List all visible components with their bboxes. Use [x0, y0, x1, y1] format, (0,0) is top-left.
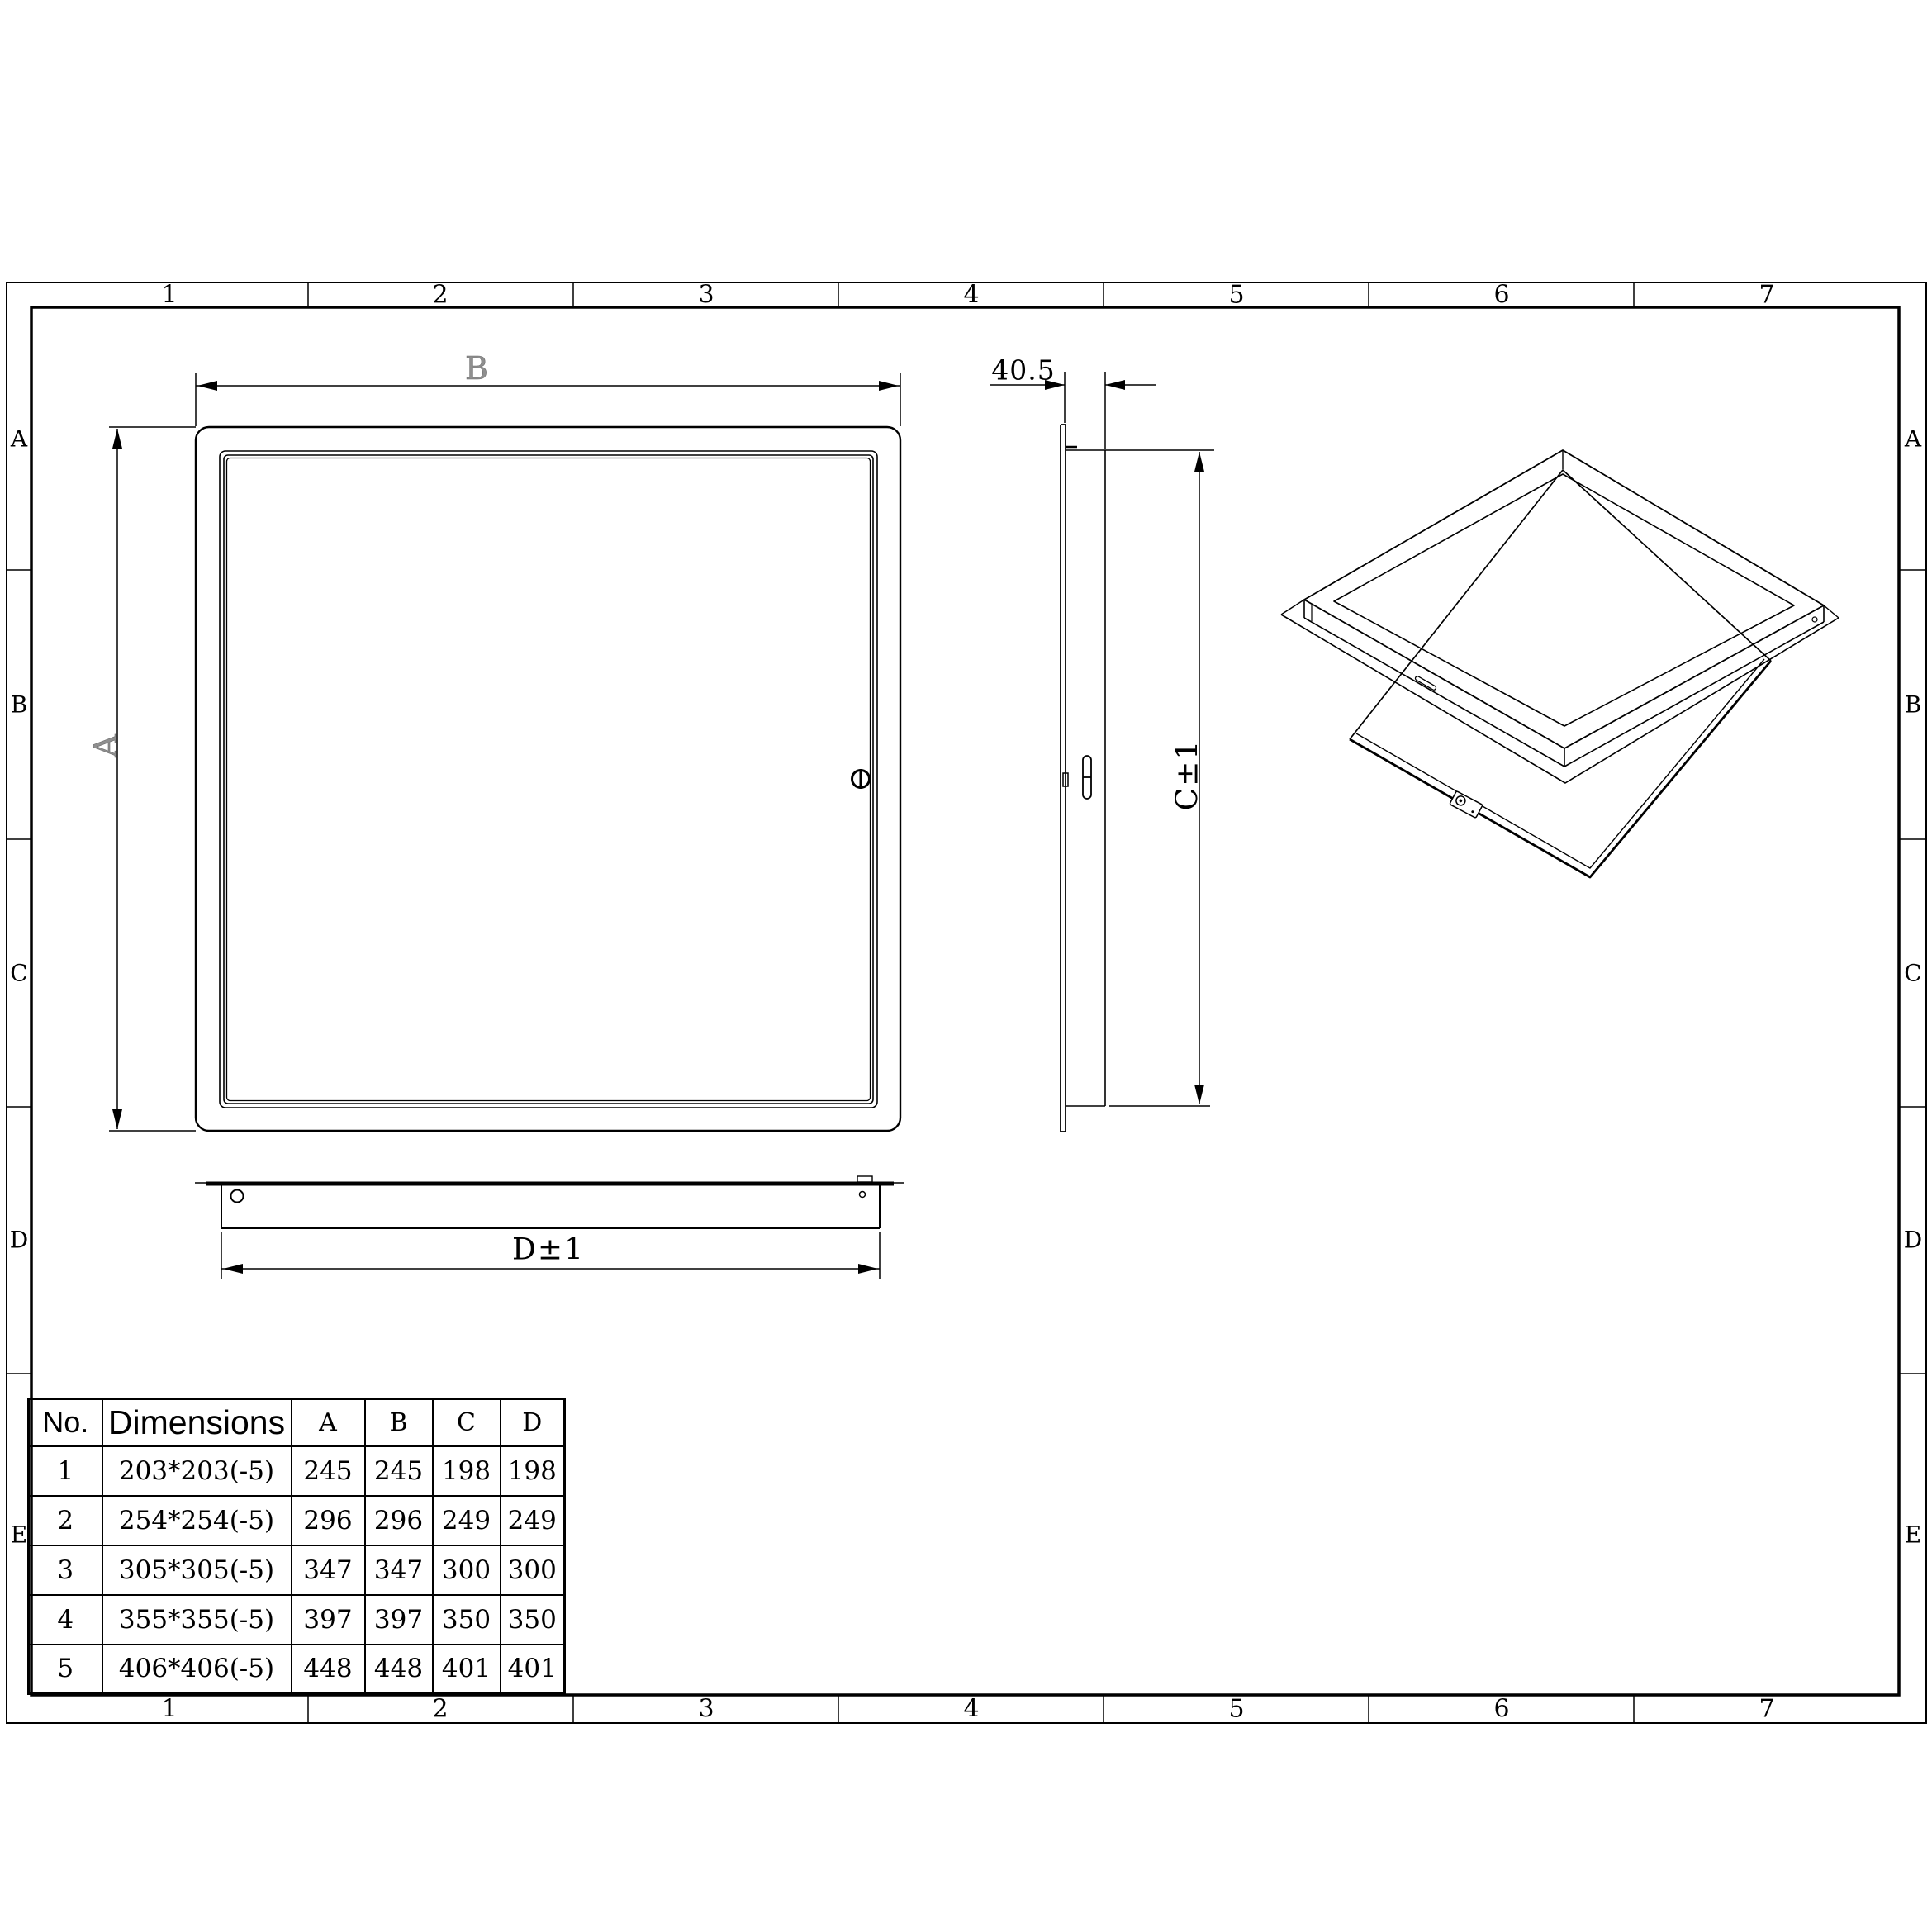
grid-col-top-4: 4	[963, 281, 979, 310]
door-flap	[1350, 470, 1771, 877]
front-height-label: A	[88, 734, 124, 757]
row-c: 249	[433, 1496, 501, 1545]
row-a: 347	[292, 1545, 365, 1595]
handle-icon	[1063, 756, 1091, 799]
row-a: 448	[292, 1645, 365, 1694]
grid-col-top-1: 1	[161, 281, 177, 310]
grid-col-top-2: 2	[432, 281, 448, 310]
row-c: 401	[433, 1645, 501, 1694]
isometric-view	[1281, 450, 1839, 877]
side-height-label: C±1	[1171, 739, 1205, 811]
row-a: 245	[292, 1446, 365, 1496]
row-b: 397	[365, 1595, 433, 1645]
grid-col-bottom-7: 7	[1759, 1695, 1774, 1724]
row-c: 350	[433, 1595, 501, 1645]
row-a: 296	[292, 1496, 365, 1545]
latch-icon	[1450, 791, 1483, 819]
grid-row-right-E: E	[1905, 1521, 1921, 1549]
row-b: 296	[365, 1496, 433, 1545]
table-row: 4 355*355(-5) 397 397 350 350	[29, 1595, 565, 1645]
grid-row-right-D: D	[1904, 1227, 1922, 1254]
header-c: C	[433, 1399, 501, 1446]
grid-col-bottom-2: 2	[432, 1695, 448, 1724]
row-no: 1	[29, 1446, 102, 1496]
row-dim: 406*406(-5)	[102, 1645, 292, 1694]
drawing-sheet: 1 2 3 4 5 6 7 1 2 3 4 5 6 7 A B C D E A …	[0, 0, 1932, 1932]
grid-row-left-E: E	[11, 1521, 27, 1549]
table-row: 5 406*406(-5) 448 448 401 401	[29, 1645, 565, 1694]
grid-row-right-B: B	[1905, 691, 1922, 719]
grid-col-bottom-5: 5	[1228, 1695, 1244, 1724]
grid-row-right-A: A	[1905, 425, 1921, 453]
grid-col-bottom-6: 6	[1493, 1695, 1509, 1724]
header-a: A	[292, 1399, 365, 1446]
row-no: 3	[29, 1545, 102, 1595]
grid-row-left-A: A	[11, 425, 27, 453]
grid-row-left-C: C	[10, 960, 27, 987]
row-no: 5	[29, 1645, 102, 1694]
knob-icon	[852, 769, 870, 789]
mount-hole-left	[231, 1190, 244, 1203]
grid-row-right-C: C	[1904, 960, 1921, 987]
table-header-row: No. Dimensions A B C D	[29, 1399, 565, 1446]
flange-hole	[1812, 617, 1817, 622]
front-width-label: B	[465, 350, 488, 387]
header-d: D	[501, 1399, 565, 1446]
row-dim: 203*203(-5)	[102, 1446, 292, 1496]
table-row: 3 305*305(-5) 347 347 300 300	[29, 1545, 565, 1595]
row-b: 245	[365, 1446, 433, 1496]
row-d: 249	[501, 1496, 565, 1545]
row-c: 300	[433, 1545, 501, 1595]
dimension-table: No. Dimensions A B C D 1 203*203(-5) 245…	[27, 1398, 566, 1695]
row-no: 2	[29, 1496, 102, 1545]
table-row: 1 203*203(-5) 245 245 198 198	[29, 1446, 565, 1496]
grid-col-top-3: 3	[698, 281, 714, 310]
row-dim: 305*305(-5)	[102, 1545, 292, 1595]
dim-A	[109, 427, 196, 1131]
mount-hole-right	[860, 1192, 866, 1198]
row-d: 198	[501, 1446, 565, 1496]
grid-col-top-6: 6	[1493, 281, 1509, 310]
grid-row-left-B: B	[11, 691, 28, 719]
grid-row-left-D: D	[10, 1227, 28, 1254]
table-row: 2 254*254(-5) 296 296 249 249	[29, 1496, 565, 1545]
header-dimensions: Dimensions	[102, 1399, 292, 1446]
grid-col-bottom-3: 3	[698, 1695, 714, 1724]
row-a: 397	[292, 1595, 365, 1645]
latch-tab	[857, 1176, 872, 1182]
row-dim: 254*254(-5)	[102, 1496, 292, 1545]
header-b: B	[365, 1399, 433, 1446]
row-b: 448	[365, 1645, 433, 1694]
dim-B	[196, 373, 900, 426]
row-d: 401	[501, 1645, 565, 1694]
grid-col-bottom-1: 1	[161, 1695, 177, 1724]
grid-col-top-5: 5	[1228, 281, 1244, 310]
side-depth-label: 40.5	[991, 354, 1055, 387]
grid-col-top-7: 7	[1759, 281, 1774, 310]
row-b: 347	[365, 1545, 433, 1595]
row-dim: 355*355(-5)	[102, 1595, 292, 1645]
bottom-width-label: D±1	[512, 1233, 585, 1267]
row-c: 198	[433, 1446, 501, 1496]
row-d: 350	[501, 1595, 565, 1645]
row-d: 300	[501, 1545, 565, 1595]
row-no: 4	[29, 1595, 102, 1645]
header-no: No.	[29, 1399, 102, 1446]
front-view	[109, 373, 900, 1131]
grid-col-bottom-4: 4	[963, 1695, 979, 1724]
